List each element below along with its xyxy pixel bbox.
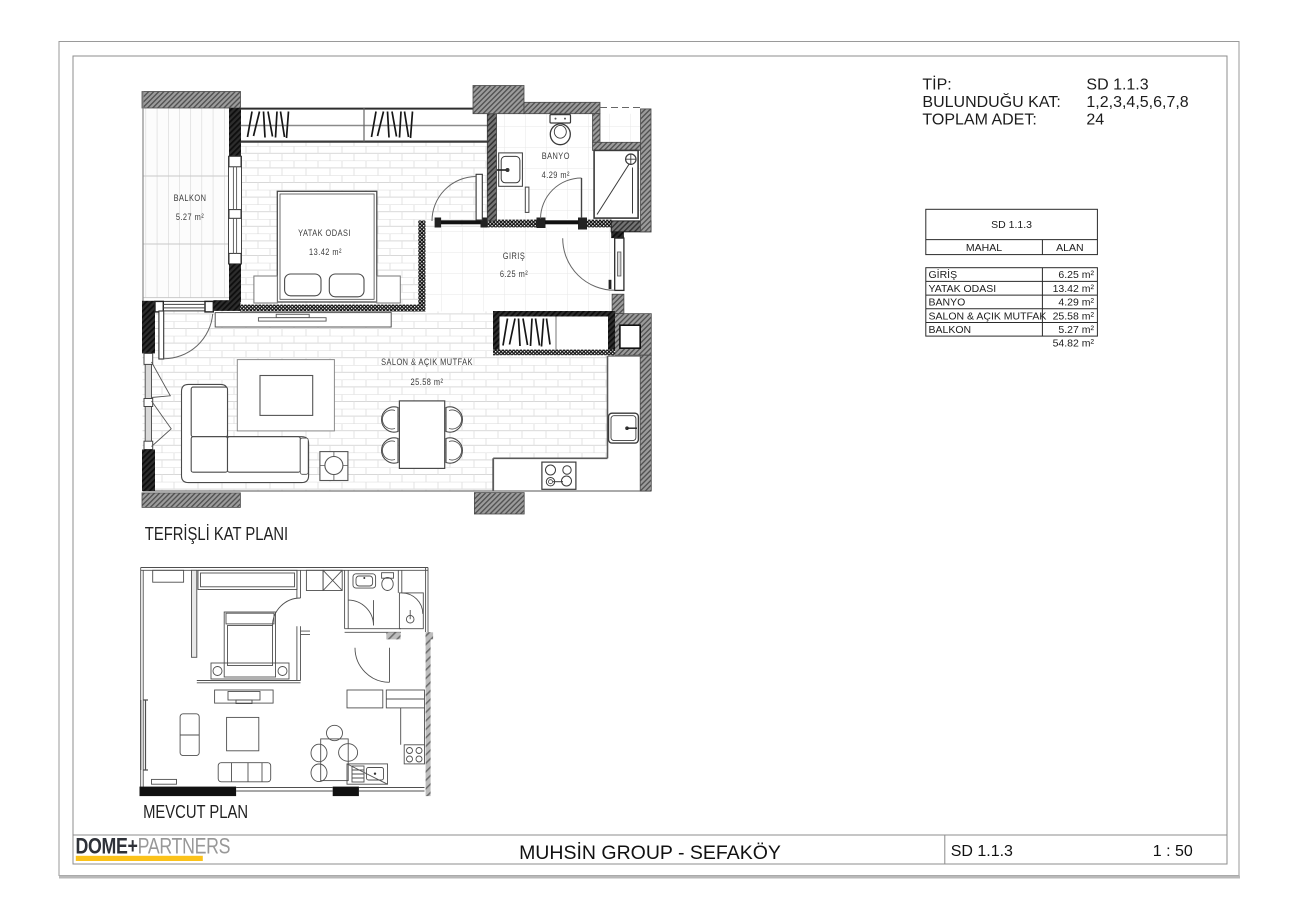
svg-text:YATAK ODASI: YATAK ODASI <box>929 283 997 295</box>
svg-text:24: 24 <box>1086 112 1104 129</box>
svg-text:4.29 m²: 4.29 m² <box>542 169 570 180</box>
svg-text:SALON & AÇIK MUTFAK: SALON & AÇIK MUTFAK <box>381 356 473 367</box>
svg-text:BANYO: BANYO <box>542 150 570 161</box>
svg-text:6.25 m²: 6.25 m² <box>500 268 528 279</box>
svg-text:6.25 m²: 6.25 m² <box>1058 269 1094 281</box>
svg-text:13.42 m²: 13.42 m² <box>309 246 342 257</box>
svg-text:SALON & AÇIK MUTFAK: SALON & AÇIK MUTFAK <box>929 310 1047 322</box>
svg-text:TEFRİŞLİ KAT PLANI: TEFRİŞLİ KAT PLANI <box>145 523 288 544</box>
svg-text:5.27 m²: 5.27 m² <box>1058 324 1094 336</box>
svg-text:GIRIŞ: GIRIŞ <box>503 250 525 261</box>
svg-text:YATAK ODASI: YATAK ODASI <box>298 227 351 238</box>
svg-text:BULUNDUĞU KAT:: BULUNDUĞU KAT: <box>922 92 1060 111</box>
svg-text:5.27 m²: 5.27 m² <box>176 211 204 222</box>
svg-text:BALKON: BALKON <box>174 192 207 203</box>
svg-text:25.58 m²: 25.58 m² <box>1053 310 1095 322</box>
svg-text:BANYO: BANYO <box>929 297 966 309</box>
svg-text:1 : 50: 1 : 50 <box>1153 843 1193 860</box>
svg-text:SD 1.1.3: SD 1.1.3 <box>951 843 1013 860</box>
svg-text:TİP:: TİP: <box>922 75 951 94</box>
svg-text:25.58 m²: 25.58 m² <box>411 376 444 387</box>
svg-text:MAHAL: MAHAL <box>966 242 1002 254</box>
svg-text:SD 1.1.3: SD 1.1.3 <box>1086 77 1148 94</box>
svg-text:MEVCUT PLAN: MEVCUT PLAN <box>143 801 248 822</box>
svg-text:1,2,3,4,5,6,7,8: 1,2,3,4,5,6,7,8 <box>1086 94 1188 111</box>
svg-text:4.29 m²: 4.29 m² <box>1058 297 1094 309</box>
svg-text:GİRİŞ: GİRİŞ <box>929 268 958 281</box>
svg-text:54.82 m²: 54.82 m² <box>1053 338 1095 350</box>
svg-text:BALKON: BALKON <box>929 324 972 336</box>
svg-text:SD 1.1.3: SD 1.1.3 <box>991 219 1032 231</box>
svg-text:13.42 m²: 13.42 m² <box>1053 283 1095 295</box>
svg-text:ALAN: ALAN <box>1056 242 1083 254</box>
svg-text:MUHSİN GROUP - SEFAKÖY: MUHSİN GROUP - SEFAKÖY <box>519 841 781 864</box>
svg-text:DOME+PARTNERS: DOME+PARTNERS <box>76 835 231 859</box>
svg-text:TOPLAM ADET:: TOPLAM ADET: <box>922 112 1036 129</box>
